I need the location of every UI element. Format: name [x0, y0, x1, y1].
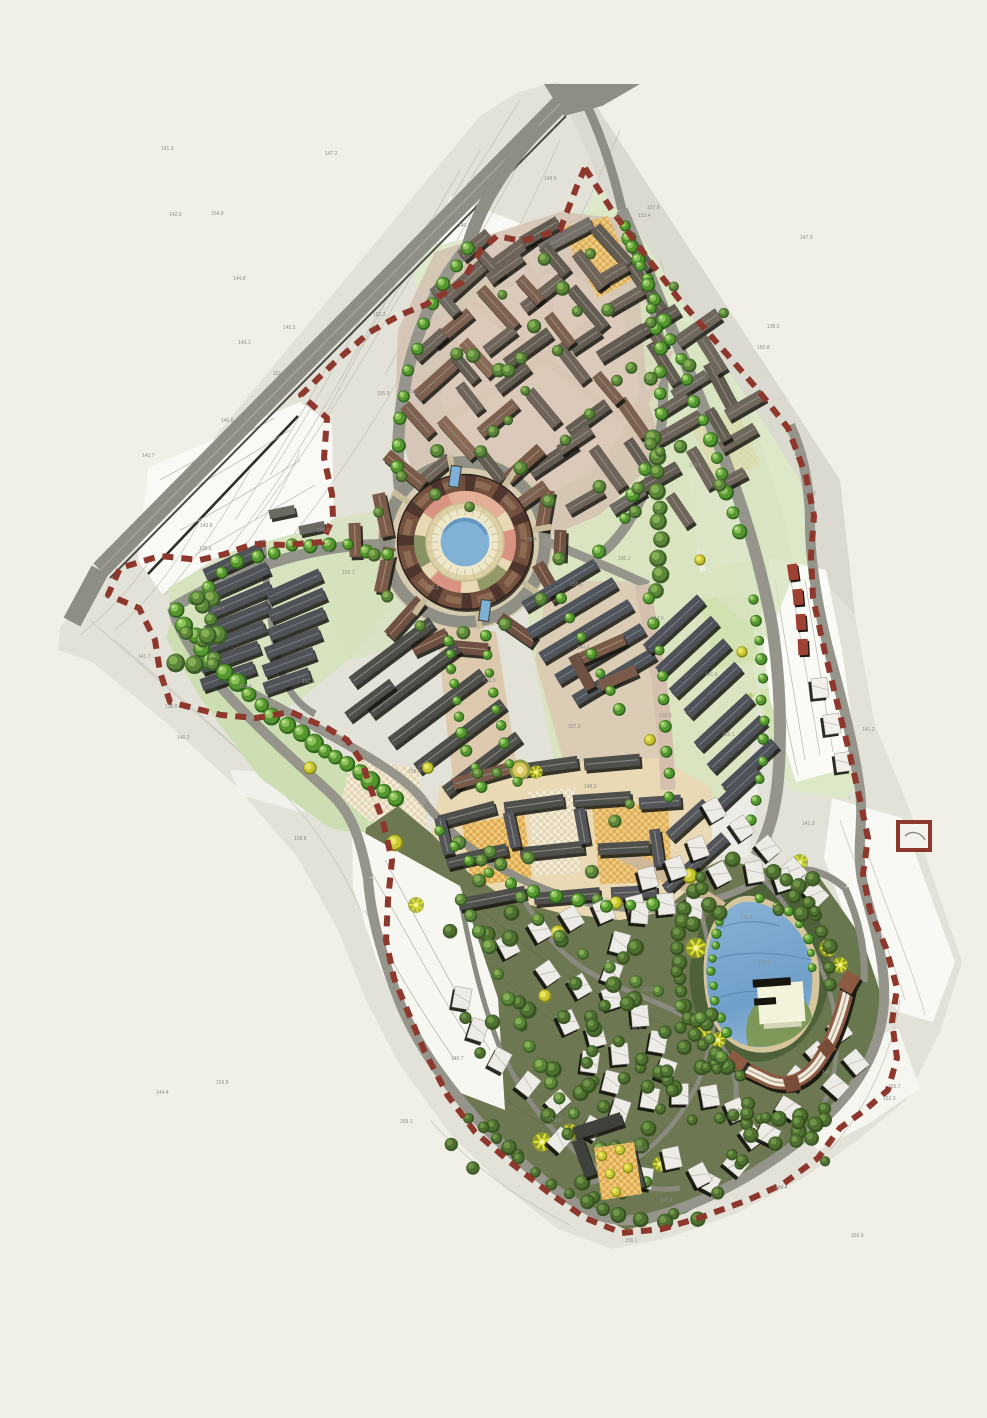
svg-text:142.5: 142.5 — [169, 212, 182, 218]
svg-text:143.7: 143.7 — [142, 453, 155, 459]
svg-text:155.6: 155.6 — [728, 1108, 741, 1114]
svg-text:150.8: 150.8 — [757, 345, 770, 351]
svg-text:138.5: 138.5 — [767, 324, 780, 330]
svg-text:154.9: 154.9 — [211, 211, 224, 217]
svg-text:144.9: 144.9 — [651, 616, 664, 622]
svg-text:155.7: 155.7 — [888, 1084, 901, 1090]
svg-text:138.6: 138.6 — [199, 546, 212, 552]
svg-text:144.6: 144.6 — [577, 645, 590, 651]
svg-text:159.6: 159.6 — [689, 463, 702, 469]
svg-text:157.3: 157.3 — [568, 724, 581, 730]
svg-text:155.1: 155.1 — [722, 732, 735, 738]
svg-text:153.3: 153.3 — [883, 1096, 896, 1102]
svg-text:147.9: 147.9 — [800, 235, 813, 241]
svg-text:141.7: 141.7 — [138, 654, 151, 660]
svg-text:141.2: 141.2 — [862, 727, 875, 733]
svg-text:139.9: 139.9 — [629, 1026, 642, 1032]
svg-text:139.5: 139.5 — [615, 214, 628, 220]
svg-text:155.2: 155.2 — [635, 1147, 648, 1153]
svg-text:143.0: 143.0 — [758, 960, 771, 966]
svg-text:156.0: 156.0 — [549, 1118, 562, 1124]
svg-text:148.0: 148.0 — [584, 784, 597, 790]
svg-text:139.9: 139.9 — [483, 678, 496, 684]
svg-text:153.3: 153.3 — [803, 491, 816, 497]
svg-text:159.5: 159.5 — [570, 582, 583, 588]
svg-text:151.0: 151.0 — [302, 679, 315, 685]
svg-text:149.6: 149.6 — [544, 176, 557, 182]
svg-text:151.7: 151.7 — [273, 371, 286, 377]
svg-text:143.1: 143.1 — [238, 340, 251, 346]
svg-text:159.8: 159.8 — [216, 1080, 229, 1086]
svg-text:141.3: 141.3 — [802, 821, 815, 827]
svg-text:147.1: 147.1 — [794, 452, 807, 458]
svg-text:138.9: 138.9 — [239, 684, 252, 690]
svg-text:159.0: 159.0 — [851, 1233, 864, 1239]
svg-text:144.4: 144.4 — [156, 1090, 169, 1096]
svg-text:148.4: 148.4 — [775, 1185, 788, 1191]
svg-text:154.7: 154.7 — [212, 606, 225, 612]
svg-text:156.1: 156.1 — [625, 1238, 638, 1244]
svg-text:153.4: 153.4 — [638, 213, 651, 219]
svg-text:159.1: 159.1 — [400, 1119, 413, 1125]
svg-text:143.4: 143.4 — [740, 915, 753, 921]
svg-text:143.8: 143.8 — [200, 523, 213, 529]
svg-text:140.7: 140.7 — [451, 1056, 464, 1062]
svg-text:159.0: 159.0 — [408, 769, 421, 775]
svg-text:144.8: 144.8 — [233, 276, 246, 282]
svg-text:151.6: 151.6 — [659, 713, 672, 719]
svg-text:140.3: 140.3 — [426, 585, 439, 591]
svg-text:138.8: 138.8 — [165, 704, 178, 710]
svg-text:148.5: 148.5 — [822, 1070, 835, 1076]
svg-text:140.0: 140.0 — [458, 223, 471, 229]
svg-text:150.1: 150.1 — [618, 556, 631, 562]
svg-text:157.8: 157.8 — [647, 205, 660, 211]
svg-text:141.3: 141.3 — [161, 146, 174, 152]
svg-text:141.7: 141.7 — [324, 549, 337, 555]
svg-text:145.5: 145.5 — [283, 325, 296, 331]
svg-text:146.0: 146.0 — [317, 528, 330, 534]
svg-text:147.8: 147.8 — [660, 1198, 673, 1204]
svg-text:141.9: 141.9 — [705, 672, 718, 678]
svg-text:147.2: 147.2 — [325, 151, 338, 157]
svg-text:152.3: 152.3 — [373, 312, 386, 318]
svg-text:152.7: 152.7 — [342, 570, 355, 576]
svg-text:146.6: 146.6 — [221, 418, 234, 424]
svg-text:143.0: 143.0 — [404, 389, 417, 395]
svg-text:146.0: 146.0 — [177, 735, 190, 741]
svg-text:138.6: 138.6 — [524, 537, 537, 543]
svg-text:150.6: 150.6 — [641, 987, 654, 993]
svg-text:158.8: 158.8 — [294, 836, 307, 842]
svg-text:155.9: 155.9 — [377, 391, 390, 397]
svg-text:155.6: 155.6 — [736, 512, 749, 518]
